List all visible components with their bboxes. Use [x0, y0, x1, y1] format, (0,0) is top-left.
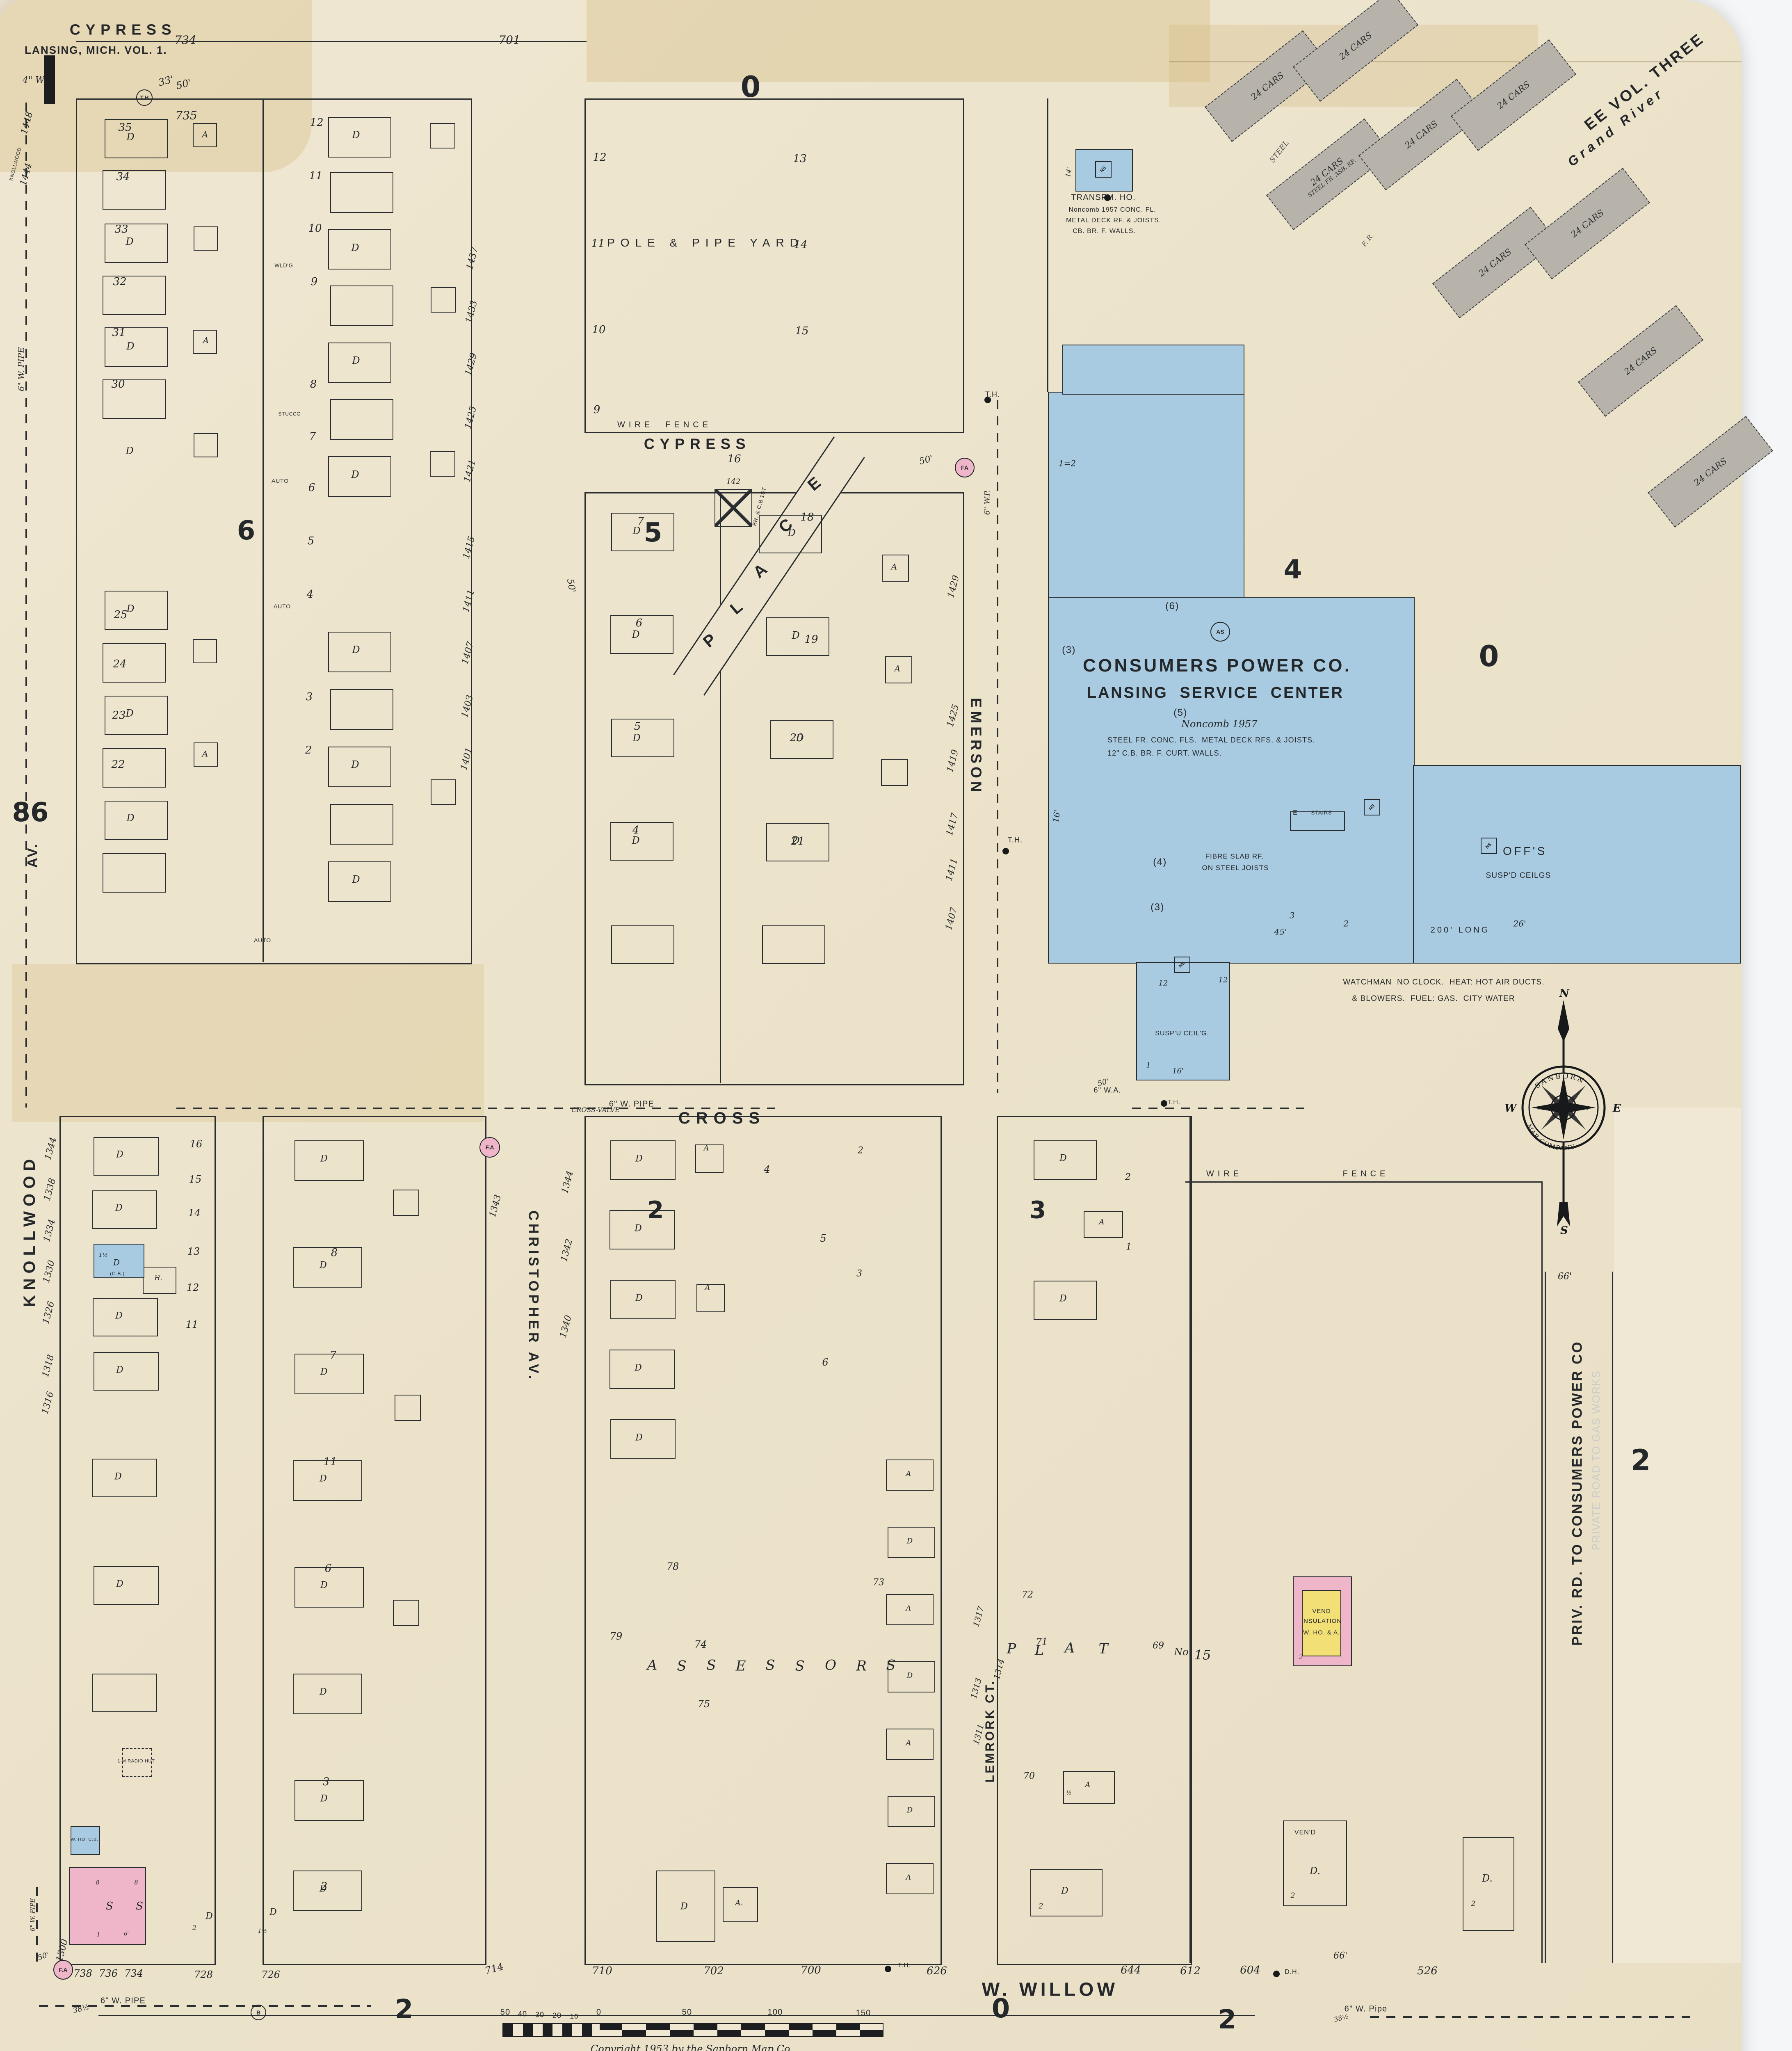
building-footprint: [395, 1395, 421, 1421]
map-annotation: D: [126, 132, 134, 143]
consumers-construction-note1: STEEL FR. CONC. FLS. METAL DECK RFS. & J…: [1107, 736, 1315, 745]
building-footprint: [92, 1674, 157, 1712]
map-annotation: 15: [1194, 1648, 1211, 1663]
map-annotation: T: [1099, 1641, 1108, 1657]
circle-marker-label: F.A: [59, 1966, 68, 1973]
consumers-service-center: LANSING SERVICE CENTER: [1087, 684, 1344, 702]
map-annotation: 33: [114, 224, 128, 236]
map-annotation: 70: [1023, 1771, 1035, 1781]
map-annotation: 2: [858, 1145, 863, 1156]
street-lemrork-ct: LEMRORK CT.: [983, 1679, 998, 1782]
map-annotation: R: [856, 1658, 867, 1674]
water-pipe-line: [1132, 1108, 1304, 1109]
circle-marker: AS: [1210, 622, 1230, 642]
map-annotation: 2: [1039, 1903, 1043, 1911]
street-knollwood-av: AV.: [25, 843, 41, 868]
map-annotation: 69: [1153, 1640, 1164, 1651]
plate-reference-number: 0: [741, 71, 761, 104]
map-annotation: 2: [1299, 1654, 1303, 1661]
building-footprint: [194, 226, 218, 251]
hydrant-dot: [1161, 1100, 1167, 1107]
map-annotation: 3: [1290, 911, 1295, 920]
map-annotation: AUTO: [272, 477, 289, 484]
map-annotation: D: [635, 1363, 642, 1373]
block-outline: [263, 1116, 486, 1965]
map-annotation: D: [269, 1907, 277, 1917]
volume-one-bar: [44, 55, 55, 104]
building-footprint: [330, 285, 393, 326]
map-annotation: 32: [113, 276, 126, 288]
map-annotation: 4: [307, 589, 314, 601]
map-annotation: D: [352, 355, 360, 367]
map-annotation: 0: [596, 2008, 601, 2017]
map-annotation: 728: [194, 1969, 213, 1981]
building-footprint: [294, 1140, 364, 1181]
map-annotation: E: [1293, 809, 1298, 817]
map-annotation: 710: [592, 1965, 612, 1978]
map-annotation: 66': [1558, 1271, 1572, 1281]
map-annotation: D: [115, 1311, 123, 1321]
map-annotation: T.H.: [898, 1962, 911, 1969]
plate-reference-number: 2: [647, 1197, 664, 1224]
map-annotation: D: [680, 1901, 688, 1912]
car-shed-label: 24 CARS: [1495, 79, 1532, 111]
street-cypress-lower: CYPRESS: [644, 435, 751, 452]
map-annotation: S: [106, 1900, 113, 1913]
map-annotation: 2: [192, 1924, 196, 1932]
circle-marker-label: T.H: [140, 94, 149, 101]
map-annotation: 200' LONG: [1431, 926, 1490, 935]
hydrant-dot: [1273, 1971, 1280, 1977]
map-annotation: 734: [174, 34, 196, 47]
map-annotation: D: [320, 1367, 328, 1377]
consumers-construction-note2: 12" C.B. BR. F. CURT. WALLS.: [1107, 749, 1222, 758]
building-footprint: [92, 1459, 157, 1497]
map-line: [98, 2015, 1255, 2016]
map-annotation: 1=2: [1059, 459, 1076, 468]
ns-diamond-label: NS: [1099, 165, 1107, 173]
map-annotation: 6: [822, 1357, 828, 1368]
map-annotation: A: [202, 130, 208, 139]
map-annotation: H.: [154, 1274, 162, 1282]
map-annotation: (C.B.): [110, 1271, 125, 1277]
map-annotation: 604: [1240, 1964, 1260, 1977]
building-footprint: [293, 1674, 362, 1714]
map-annotation: 6': [124, 1932, 129, 1938]
map-annotation: D: [126, 341, 134, 352]
map-annotation: 78: [667, 1561, 679, 1573]
map-annotation: A: [906, 1739, 911, 1748]
map-annotation: CB. BR. F. WALLS.: [1073, 228, 1136, 235]
map-annotation: S: [886, 1657, 895, 1673]
map-annotation: METAL DECK RF. & JOISTS.: [1066, 217, 1161, 224]
map-annotation: D: [116, 1365, 123, 1375]
building-footprint: [610, 1419, 676, 1459]
map-line: [1612, 1272, 1613, 1963]
map-annotation: 66': [1333, 1951, 1347, 1961]
map-annotation: OFF'S: [1503, 845, 1547, 858]
map-annotation: L: [1035, 1642, 1044, 1658]
map-annotation: 6: [325, 1563, 332, 1575]
map-annotation: 34: [116, 171, 130, 183]
water-pipe-line: [25, 103, 27, 1108]
map-annotation: D: [352, 874, 360, 886]
map-annotation: 12: [1219, 976, 1228, 985]
building-footprint: [105, 119, 168, 158]
map-annotation: 726: [261, 1969, 280, 1981]
map-annotation: 12: [310, 117, 323, 129]
ns-diamond-label: NS: [1485, 842, 1493, 850]
map-annotation: 13: [187, 1246, 200, 1258]
street-knollwood: KNOLLWOOD: [20, 1154, 39, 1307]
map-annotation: 142: [726, 478, 740, 486]
map-annotation: 2: [1344, 919, 1349, 929]
building-footprint: [610, 1140, 676, 1180]
map-annotation: D: [352, 130, 360, 141]
map-annotation: D: [632, 629, 639, 641]
map-annotation: 16: [190, 1139, 203, 1150]
map-annotation: 40: [518, 2010, 527, 2019]
car-shed-label: 24 CARS: [1249, 70, 1286, 102]
map-annotation: 8: [331, 1247, 338, 1259]
map-annotation: D: [116, 1579, 123, 1589]
map-annotation: W. HO. C.B.: [71, 1837, 98, 1843]
map-annotation: D: [632, 525, 640, 537]
map-annotation: 23: [112, 710, 126, 722]
map-annotation: 11: [309, 170, 322, 183]
map-annotation: 14: [794, 239, 807, 251]
map-annotation: D: [115, 1203, 123, 1213]
map-annotation: 74: [694, 1639, 707, 1651]
map-annotation: D: [126, 236, 133, 248]
map-annotation: VEND: [1312, 1608, 1331, 1615]
building-footprint: [93, 1298, 158, 1336]
map-annotation: STAIRS: [1311, 810, 1332, 816]
street-cypress-upper: CYPRESS: [70, 21, 176, 38]
map-line: [1541, 1181, 1543, 1963]
map-annotation: 12: [1159, 980, 1168, 988]
building-footprint: [610, 1350, 675, 1389]
map-annotation: 6" W. PIPE: [100, 1996, 146, 2006]
plate-reference-number: 2: [1218, 2005, 1237, 2035]
building-footprint: [611, 719, 674, 757]
map-annotation: 50: [682, 2008, 692, 2017]
map-line: [1545, 1272, 1546, 1963]
building-footprint: [103, 643, 166, 683]
map-annotation: D: [320, 1793, 328, 1804]
map-annotation: T.H.: [1167, 1099, 1180, 1106]
map-annotation: D: [907, 1672, 913, 1681]
building-footprint: [430, 123, 455, 148]
map-annotation: A: [906, 1605, 911, 1613]
map-annotation: 700: [801, 1964, 821, 1977]
map-annotation: 3: [323, 1776, 330, 1788]
map-annotation: 6" W.A.: [1094, 1086, 1121, 1095]
map-annotation: 626: [927, 1965, 947, 1978]
map-annotation: D: [352, 644, 360, 656]
building-footprint: [293, 1247, 362, 1288]
map-annotation: 15: [189, 1174, 202, 1185]
map-annotation: A.: [735, 1899, 743, 1908]
map-annotation: INSULATION: [1301, 1617, 1342, 1624]
building-footprint: [1048, 597, 1415, 964]
map-annotation: No: [1174, 1647, 1188, 1658]
map-annotation: D: [351, 242, 359, 254]
map-annotation: 20: [552, 2012, 562, 2020]
compass-monogram: SM: [1558, 1103, 1573, 1113]
map-annotation: 644: [1121, 1964, 1141, 1977]
map-annotation: 2: [1125, 1172, 1131, 1182]
map-annotation: Noncomb 1957 CONC. FL.: [1068, 206, 1156, 214]
hydrant-dot: [1104, 194, 1111, 201]
map-annotation: D: [320, 1580, 328, 1590]
map-annotation: D: [126, 708, 133, 719]
plate-reference-number: 6: [237, 516, 256, 546]
map-annotation: 15: [795, 325, 808, 338]
circle-marker: F.A: [479, 1137, 500, 1158]
map-annotation: 736: [99, 1968, 118, 1980]
map-annotation: D: [126, 445, 133, 457]
map-annotation: SUSP'D CEILGS: [1486, 871, 1551, 880]
map-annotation: A: [647, 1657, 657, 1673]
map-annotation: TRANSFM. HO.: [1071, 193, 1136, 203]
map-annotation: 100: [768, 2008, 783, 2017]
scale-bar-fine-segment: [503, 2024, 600, 2036]
compass-rose: N W E S SANBORN MAP COMPANY EST. 1876 SM: [1468, 980, 1657, 1235]
copyright-line: Copyright 1953 by the Sanborn Map Co.: [591, 2044, 793, 2051]
map-annotation: CROSS-VALVE: [571, 1106, 620, 1114]
compass-e: E: [1612, 1102, 1621, 1115]
map-annotation: 1½: [258, 1928, 267, 1935]
map-annotation: 11: [591, 238, 605, 250]
map-line: [263, 98, 264, 962]
map-annotation: P: [1007, 1641, 1016, 1657]
map-annotation: 9: [594, 404, 600, 416]
compass-ring-bottom-text: MAP COMPANY: [1525, 1123, 1576, 1152]
map-annotation: 7: [330, 1350, 337, 1362]
street-cross: CROSS: [678, 1109, 765, 1128]
block-outline: [997, 1116, 1192, 1965]
map-annotation: AUTO: [274, 603, 291, 610]
map-annotation: 8: [96, 1880, 100, 1886]
map-annotation: 10: [592, 324, 605, 336]
building-footprint: [330, 689, 393, 730]
plate-reference-number: 86: [12, 798, 48, 828]
map-annotation: FENCE: [1343, 1169, 1389, 1179]
map-annotation: 11: [323, 1456, 337, 1469]
map-annotation: 10: [308, 223, 322, 235]
map-annotation: 12: [187, 1282, 199, 1294]
map-annotation: STUCCO: [279, 411, 301, 417]
building-footprint: [393, 1190, 419, 1216]
building-footprint: [103, 170, 166, 210]
map-line: [1189, 1116, 1191, 1963]
building-footprint: [103, 276, 166, 315]
map-annotation: D: [320, 1687, 327, 1697]
building-footprint: [105, 224, 168, 263]
compass-n: N: [1559, 987, 1570, 1000]
map-annotation: D: [320, 1473, 327, 1484]
map-annotation: 4: [764, 1164, 770, 1176]
map-line: [1047, 98, 1048, 392]
building-footprint: [92, 1190, 157, 1229]
hydrant-dot: [984, 397, 991, 403]
map-annotation: A: [203, 336, 209, 345]
sanborn-map-sheet: 24 CARS 24 CARS 24 CARS STEEL FR. ASB. R…: [0, 0, 1792, 2051]
car-shed-label: 24 CARS: [1569, 208, 1606, 239]
map-annotation: D: [113, 1258, 120, 1268]
map-annotation: O: [825, 1657, 836, 1673]
map-annotation: (4): [1153, 856, 1167, 868]
building-footprint: [94, 1137, 159, 1176]
building-footprint: [1062, 345, 1244, 395]
map-annotation: D: [796, 733, 804, 744]
map-annotation: 6" W. PIPE: [17, 347, 26, 391]
street-emerson: EMERSON: [968, 698, 984, 795]
building-footprint: [695, 1144, 724, 1173]
building-footprint: [610, 822, 673, 861]
building-footprint: [1048, 392, 1244, 600]
map-annotation: 3: [306, 691, 313, 703]
map-annotation: 30: [535, 2011, 544, 2019]
map-annotation: A: [202, 749, 208, 759]
plate-reference-number: 4: [1284, 555, 1302, 585]
map-annotation: POLE & PIPE YARD: [607, 236, 804, 249]
map-annotation: S: [677, 1658, 686, 1674]
map-annotation: 5: [820, 1233, 826, 1245]
consumers-power-title: CONSUMERS POWER CO.: [1083, 655, 1351, 676]
map-annotation: FIBRE SLAB RF.: [1205, 852, 1264, 861]
consumers-noncomb-note: Noncomb 1957: [1181, 719, 1258, 730]
map-annotation: VEN'D: [1294, 1829, 1316, 1836]
map-annotation: D: [205, 1911, 213, 1921]
map-annotation: S: [706, 1657, 716, 1673]
plate-reference-number: 3: [1030, 1197, 1046, 1224]
map-annotation: 2: [1290, 1892, 1295, 1900]
map-annotation: D.H.: [1285, 1969, 1299, 1976]
svg-text:MAP COMPANY: MAP COMPANY: [1525, 1123, 1576, 1152]
map-annotation: D: [635, 1293, 643, 1303]
map-annotation: D: [907, 1807, 913, 1815]
map-annotation: 1: [1146, 1062, 1151, 1070]
compass-w: W: [1504, 1102, 1518, 1115]
map-annotation: 10: [570, 2012, 579, 2021]
map-annotation: 14: [188, 1208, 201, 1219]
building-footprint: [328, 229, 391, 270]
map-annotation: (3): [1151, 902, 1164, 913]
map-annotation: 50: [500, 2008, 511, 2017]
map-annotation: 5: [634, 721, 641, 733]
map-annotation: D: [351, 469, 359, 481]
map-annotation: A: [906, 1874, 911, 1882]
map-annotation: 24: [113, 658, 126, 671]
building-footprint: [430, 451, 455, 477]
scale-bar: [502, 2023, 883, 2037]
map-annotation: PRIVATE ROAD TO GAS WORKS: [1590, 1370, 1603, 1551]
map-annotation: A: [891, 562, 897, 572]
map-annotation: D.: [1482, 1873, 1493, 1884]
map-annotation: 18: [800, 512, 814, 524]
map-annotation: SUSP'U CEIL'G.: [1155, 1030, 1209, 1037]
building-footprint: [328, 747, 391, 787]
plate-reference-number: 2: [1631, 1444, 1651, 1477]
map-annotation: D: [635, 1223, 642, 1233]
circle-marker-label: AS: [1216, 628, 1224, 635]
compass-est: EST.: [1538, 1105, 1549, 1111]
map-annotation: ON STEEL JOISTS: [1202, 864, 1269, 872]
car-shed-label: 24 CARS: [1337, 30, 1374, 62]
hydrant-dot: [1002, 848, 1009, 854]
building-footprint: [105, 801, 168, 840]
map-annotation: S: [795, 1658, 804, 1674]
map-annotation: D.: [1310, 1866, 1320, 1877]
map-annotation: 31: [112, 327, 126, 339]
map-annotation: D: [788, 528, 795, 539]
map-annotation: 7: [309, 431, 316, 443]
map-annotation: T.H.: [1008, 836, 1023, 845]
map-annotation: 1: [1126, 1242, 1132, 1252]
water-pipe-line: [1370, 2016, 1690, 2018]
building-footprint: [610, 1280, 676, 1319]
map-annotation: A: [1065, 1640, 1075, 1656]
map-annotation: (5): [1173, 707, 1187, 719]
map-annotation: 11: [186, 1319, 199, 1331]
map-annotation: 22: [111, 759, 125, 771]
map-annotation: 19: [804, 634, 818, 646]
car-shed-label: 24 CARS: [1403, 119, 1440, 150]
map-annotation: 6: [308, 482, 315, 494]
map-annotation: 2: [305, 745, 312, 757]
map-annotation: A: [1099, 1218, 1105, 1227]
map-annotation: A: [704, 1144, 709, 1153]
svg-text:SANBORN: SANBORN: [1534, 1072, 1587, 1090]
building-footprint: [881, 759, 908, 786]
map-annotation: (6): [1165, 601, 1179, 612]
map-annotation: 30: [111, 379, 125, 391]
map-annotation: 6" W.P.: [984, 490, 992, 515]
building-footprint: [715, 489, 752, 527]
block-outline: [584, 98, 964, 433]
map-annotation: D: [320, 1260, 327, 1270]
map-annotation: A: [1085, 1781, 1091, 1790]
map-annotation: WIRE: [1206, 1169, 1242, 1179]
street-christopher-av: CHRISTOPHER AV.: [525, 1211, 541, 1382]
building-footprint: [94, 1352, 159, 1391]
compass-year: 1876: [1576, 1105, 1589, 1111]
map-annotation: D: [126, 813, 134, 824]
map-annotation: 6: [636, 617, 643, 630]
map-annotation: D: [1059, 1293, 1067, 1304]
circle-marker-label: B: [256, 2009, 260, 2016]
map-annotation: 13: [793, 153, 806, 165]
map-annotation: 1: [97, 1932, 100, 1939]
map-annotation: S: [765, 1657, 775, 1673]
car-shed-label: 24 CARS: [1477, 247, 1513, 278]
water-pipe-line: [997, 400, 998, 1093]
building-footprint: [611, 925, 674, 964]
building-footprint: [330, 399, 393, 440]
map-annotation: D: [632, 733, 640, 744]
map-annotation: D: [635, 1153, 643, 1164]
building-footprint: [393, 1600, 419, 1626]
map-annotation: D: [320, 1153, 328, 1164]
map-annotation: 702: [703, 1965, 724, 1978]
map-annotation: E: [736, 1658, 746, 1674]
map-annotation: 526: [1417, 1965, 1438, 1978]
building-footprint: [328, 456, 391, 497]
map-annotation: D: [1059, 1153, 1067, 1163]
map-annotation: 6" W. PIPE: [29, 1898, 36, 1932]
